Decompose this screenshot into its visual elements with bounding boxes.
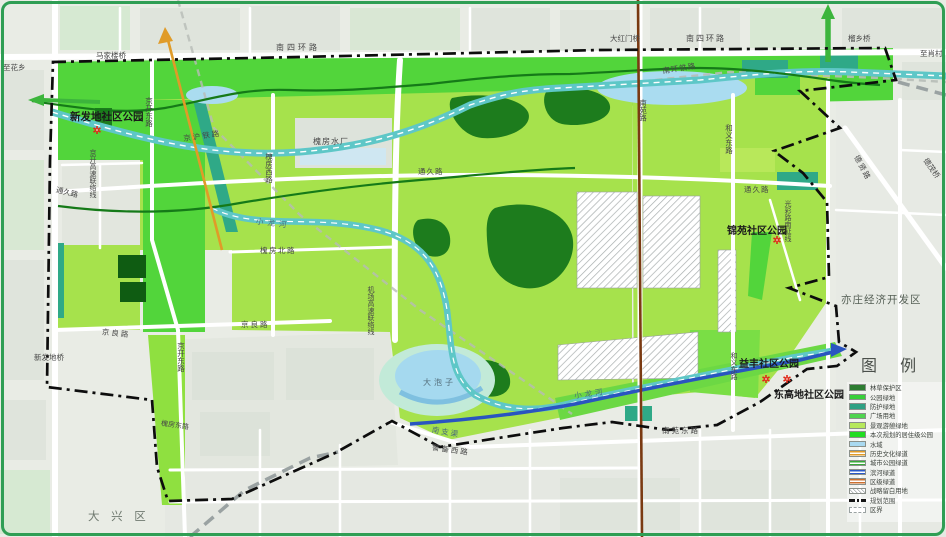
legend-item: 本次规划的居住级公园 bbox=[849, 430, 945, 439]
legend-label: 本次规划的居住级公园 bbox=[870, 430, 933, 439]
legend-item: 滨河绿道 bbox=[849, 468, 945, 477]
road-label: 京开高速联络线 bbox=[89, 148, 97, 198]
legend-swatch bbox=[849, 469, 866, 476]
road-label: 南苑东路 bbox=[662, 425, 700, 435]
legend-swatch bbox=[849, 413, 866, 420]
legend-swatch bbox=[849, 450, 866, 457]
place-label: 槐房水厂 bbox=[313, 136, 349, 146]
road-label: 槐房西路 bbox=[264, 152, 273, 184]
bridge-label: 马家楼桥 bbox=[96, 50, 126, 60]
road-label: 通久路 bbox=[744, 184, 770, 194]
district-label-yizhuang: 亦庄经济开发区 bbox=[841, 293, 922, 306]
legend-item: 区界 bbox=[849, 505, 945, 514]
legend-item: 广场用地 bbox=[849, 411, 945, 420]
legend-label: 水域 bbox=[870, 440, 883, 449]
road-label: 京开东路 bbox=[176, 341, 185, 373]
legend-swatch bbox=[849, 394, 866, 401]
legend-item: 区级绿道 bbox=[849, 477, 945, 486]
legend-swatch bbox=[849, 403, 866, 410]
road-label: 京良路 bbox=[241, 319, 270, 329]
legend-item: 林草保护区 bbox=[849, 383, 945, 392]
road-label: 和义东路 bbox=[730, 351, 738, 381]
legend-label: 区级绿道 bbox=[870, 477, 895, 486]
bridge-label: 新发地桥 bbox=[34, 352, 64, 362]
park-label-donggaodi: 东高地社区公园 bbox=[774, 388, 844, 401]
road-label: 南四环路 bbox=[276, 42, 320, 52]
park-label-yifeng: 益丰社区公园 bbox=[739, 357, 799, 370]
legend-label: 战略留白用地 bbox=[870, 486, 908, 495]
legend-label: 公园绿地 bbox=[870, 393, 895, 402]
legend-swatch bbox=[849, 384, 866, 391]
legend-item: 规划范围 bbox=[849, 496, 945, 505]
legend-item: 景观游憩绿地 bbox=[849, 421, 945, 430]
note-label: 至肖村 bbox=[920, 48, 943, 58]
legend-swatch bbox=[849, 507, 866, 514]
bridge-label: 大红门桥 bbox=[610, 33, 640, 43]
road-label: 槐房北路 bbox=[260, 245, 296, 255]
legend-label: 林草保护区 bbox=[870, 383, 901, 392]
legend-item: 城市公园绿道 bbox=[849, 458, 945, 467]
legend-swatch bbox=[849, 460, 866, 467]
legend-label: 规划范围 bbox=[870, 496, 895, 505]
park-label-xinfadi: 新发地社区公园 bbox=[70, 110, 144, 123]
note-label: 至花乡 bbox=[3, 62, 26, 72]
legend-label: 区界 bbox=[870, 505, 883, 514]
legend-item: 水域 bbox=[849, 439, 945, 448]
legend-swatch bbox=[849, 422, 866, 429]
legend-item: 防护绿地 bbox=[849, 402, 945, 411]
bridge-label: 榴乡桥 bbox=[848, 33, 871, 43]
legend-title: 图 例 bbox=[849, 352, 945, 376]
legend-label: 景观游憩绿地 bbox=[870, 421, 908, 430]
legend-label: 城市公园绿道 bbox=[870, 458, 908, 467]
road-label: 和义东路 bbox=[724, 124, 733, 155]
legend-swatch bbox=[849, 478, 866, 485]
park-label-jinyuan: 锦苑社区公园 bbox=[727, 224, 787, 237]
legend-item: 公园绿地 bbox=[849, 392, 945, 401]
road-label: 南四环路 bbox=[686, 33, 726, 43]
legend-item: 战略留白用地 bbox=[849, 486, 945, 495]
legend-swatch bbox=[849, 488, 866, 495]
legend-swatch bbox=[849, 441, 866, 448]
district-label-daxing: 大 兴 区 bbox=[88, 509, 150, 523]
road-label: 通久路 bbox=[418, 166, 444, 176]
legend-label: 滨河绿道 bbox=[870, 468, 895, 477]
map-canvas: 马家楼桥 至花乡 南四环路 大红门桥 南四环路 榴乡桥 至肖村 京开东路 京沪铁… bbox=[0, 0, 946, 537]
legend-label: 防护绿地 bbox=[870, 402, 895, 411]
legend-label: 历史文化绿道 bbox=[870, 449, 908, 458]
legend: 图 例 林草保护区 公园绿地 防护绿地 广场用地 景观游憩绿地 本次规划的居住级… bbox=[849, 352, 945, 514]
road-label: 京开东路 bbox=[144, 96, 153, 128]
legend-item: 历史文化绿道 bbox=[849, 449, 945, 458]
legend-label: 广场用地 bbox=[870, 411, 895, 420]
road-label: 机场高速联络线 bbox=[367, 285, 375, 335]
planning-map-screenshot: 马家楼桥 至花乡 南四环路 大红门桥 南四环路 榴乡桥 至肖村 京开东路 京沪铁… bbox=[0, 0, 946, 537]
legend-swatch bbox=[849, 499, 866, 502]
legend-swatch bbox=[849, 431, 866, 438]
lake-label: 大泡子 bbox=[423, 377, 456, 387]
road-label: 南苑路 bbox=[638, 98, 647, 122]
